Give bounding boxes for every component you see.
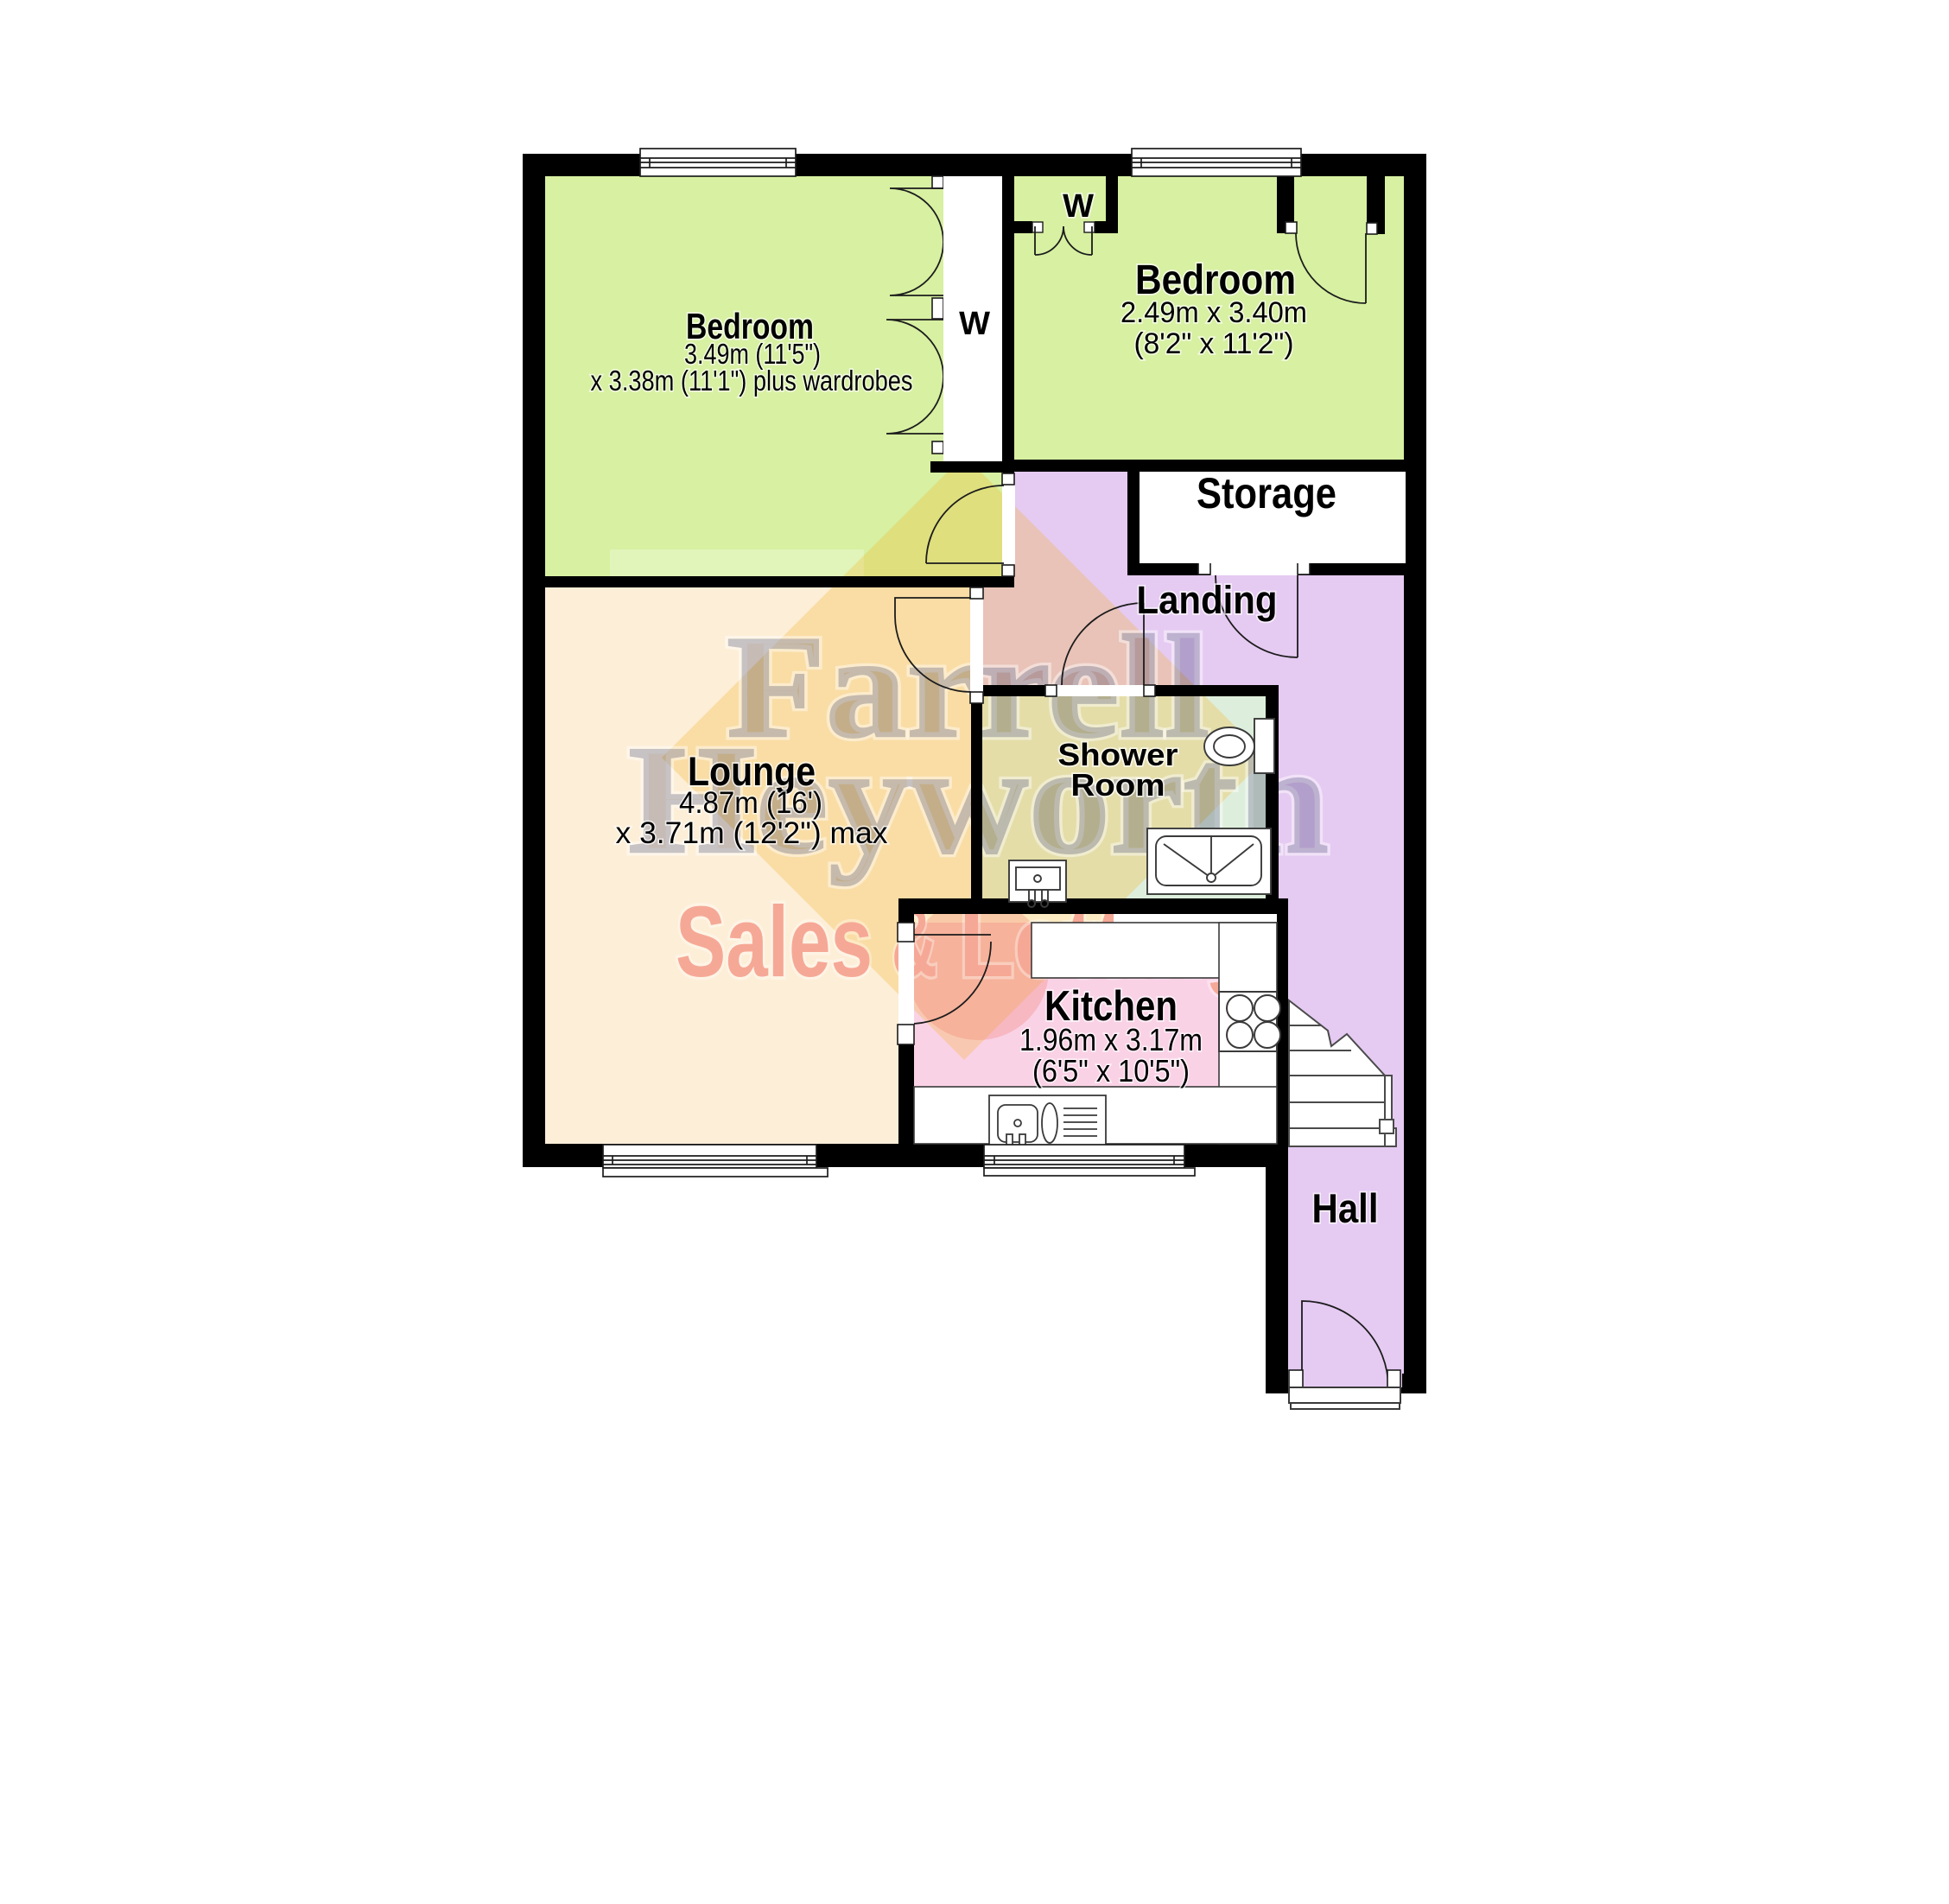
svg-text:1.96m x 3.17m: 1.96m x 3.17m bbox=[1019, 1022, 1203, 1057]
svg-text:Room: Room bbox=[1071, 767, 1165, 803]
svg-text:Hall: Hall bbox=[1312, 1185, 1379, 1231]
svg-text:W: W bbox=[1063, 188, 1094, 225]
svg-text:Sales: Sales bbox=[676, 885, 873, 998]
svg-text:Landing: Landing bbox=[1137, 578, 1278, 622]
svg-text:x 3.38m (11'1") plus wardrobes: x 3.38m (11'1") plus wardrobes bbox=[591, 365, 913, 397]
svg-text:(8'2" x 11'2"): (8'2" x 11'2") bbox=[1134, 327, 1294, 360]
svg-text:Storage: Storage bbox=[1197, 469, 1336, 517]
svg-text:W: W bbox=[959, 306, 990, 342]
svg-text:x 3.71m (12'2") max: x 3.71m (12'2") max bbox=[616, 816, 888, 850]
svg-text:4.87m (16'): 4.87m (16') bbox=[679, 786, 822, 820]
svg-text:2.49m x 3.40m: 2.49m x 3.40m bbox=[1121, 296, 1307, 329]
svg-text:(6'5" x 10'5"): (6'5" x 10'5") bbox=[1032, 1053, 1190, 1088]
